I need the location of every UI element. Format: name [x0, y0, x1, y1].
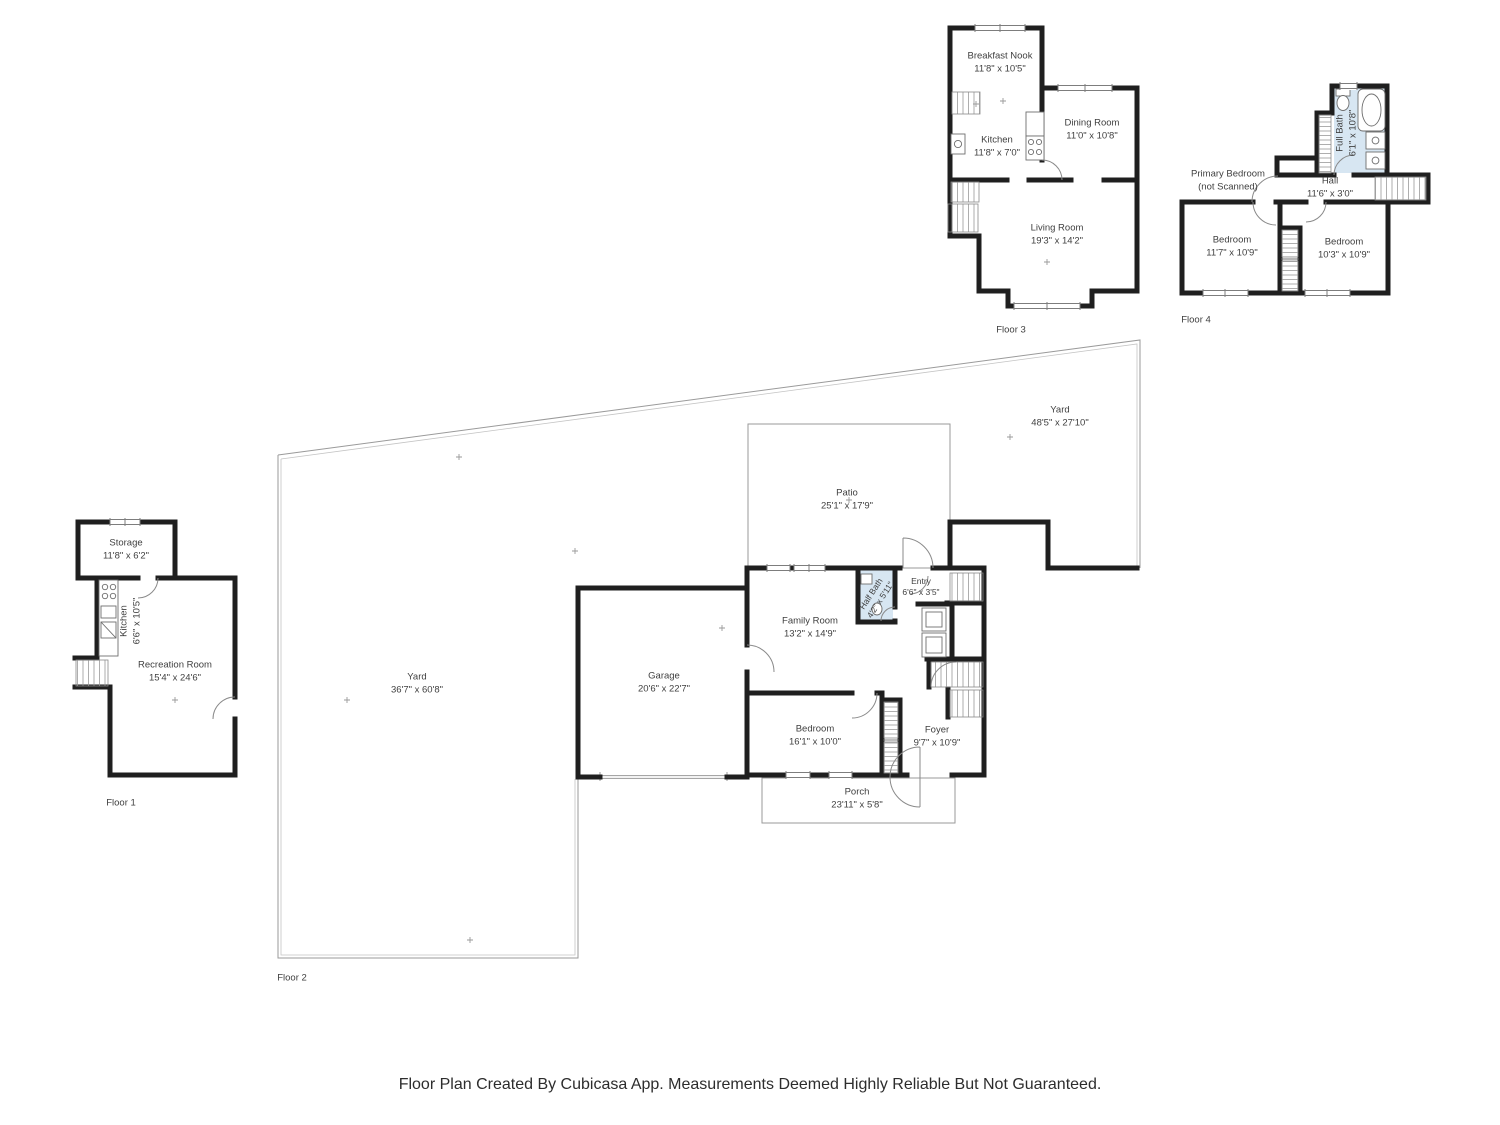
room-dims: 36'7" x 60'8" — [391, 684, 443, 697]
label-floor1-storage: Storage 11'8" x 6'2" — [103, 537, 149, 564]
room-dims: 10'3" x 10'9" — [1318, 249, 1370, 262]
label-floor3-dining-room: Dining Room 11'0" x 10'8" — [1065, 117, 1120, 144]
floor4-label: Floor 4 — [1181, 315, 1211, 326]
room-dims: 23'11" x 5'8" — [831, 799, 882, 812]
room-name: Yard — [1031, 404, 1088, 417]
room-dims: 11'7" x 10'9" — [1206, 247, 1257, 260]
label-floor3-living-room: Living Room 19'3" x 14'2" — [1031, 222, 1084, 249]
room-dims: 15'4" x 24'6" — [138, 672, 212, 685]
floor-2-plan — [278, 340, 1140, 958]
floor-1-plan — [75, 518, 235, 775]
label-floor4-full-bath: Full Bath 6'1" x 10'8" — [1334, 110, 1361, 157]
floor3-label: Floor 3 — [996, 325, 1026, 336]
room-dims: 6'1" x 10'8" — [1347, 110, 1360, 157]
room-dims: 11'0" x 10'8" — [1065, 130, 1120, 143]
label-floor3-kitchen: Kitchen 11'8" x 7'0" — [974, 134, 1020, 161]
floorplan-canvas — [0, 0, 1500, 1125]
room-name: Living Room — [1031, 222, 1084, 235]
room-dims: 11'8" x 7'0" — [974, 147, 1020, 160]
label-floor2-porch: Porch 23'11" x 5'8" — [831, 786, 882, 813]
room-name: Dining Room — [1065, 117, 1120, 130]
label-floor1-kitchen: Kitchen 6'6" x 10'5" — [118, 598, 145, 645]
label-floor2-family-room: Family Room 13'2" x 14'9" — [782, 615, 838, 642]
room-dims: (not Scanned) — [1191, 181, 1265, 194]
room-name: Primary Bedroom — [1191, 168, 1265, 181]
label-floor2-foyer: Foyer 9'7" x 10'9" — [914, 724, 961, 751]
label-floor2-patio: Patio 25'1" x 17'9" — [821, 487, 873, 514]
room-name: Breakfast Nook — [968, 50, 1033, 63]
room-dims: 6'6" x 3'5" — [902, 587, 939, 598]
room-dims: 20'6" x 22'7" — [638, 683, 690, 696]
room-name: Recreation Room — [138, 659, 212, 672]
label-floor2-yard-left: Yard 36'7" x 60'8" — [391, 671, 443, 698]
room-name: Storage — [103, 537, 149, 550]
label-floor2-garage: Garage 20'6" x 22'7" — [638, 670, 690, 697]
label-floor4-primary-bedroom: Primary Bedroom (not Scanned) — [1191, 168, 1265, 195]
label-floor3-breakfast-nook: Breakfast Nook 11'8" x 10'5" — [968, 50, 1033, 77]
room-dims: 48'5" x 27'10" — [1031, 417, 1088, 430]
caption-text: Floor Plan Created By Cubicasa App. Meas… — [0, 1076, 1500, 1094]
room-dims: 25'1" x 17'9" — [821, 500, 873, 513]
label-floor2-bedroom: Bedroom 16'1" x 10'0" — [789, 723, 841, 750]
room-name: Patio — [821, 487, 873, 500]
room-name: Full Bath — [1334, 110, 1347, 157]
room-dims: 11'6" x 3'0" — [1307, 188, 1353, 201]
room-dims: 9'7" x 10'9" — [914, 737, 961, 750]
room-name: Bedroom — [1206, 234, 1257, 247]
room-dims: 13'2" x 14'9" — [782, 628, 838, 641]
room-name: Porch — [831, 786, 882, 799]
label-floor1-recreation-room: Recreation Room 15'4" x 24'6" — [138, 659, 212, 686]
label-floor4-bedroom-left: Bedroom 11'7" x 10'9" — [1206, 234, 1257, 261]
room-dims: 11'8" x 10'5" — [968, 63, 1033, 76]
room-name: Kitchen — [118, 598, 131, 645]
room-name: Bedroom — [1318, 236, 1370, 249]
label-floor2-yard-right: Yard 48'5" x 27'10" — [1031, 404, 1088, 431]
floorplan-page: Breakfast Nook 11'8" x 10'5" Kitchen 11'… — [0, 0, 1500, 1125]
room-dims: 11'8" x 6'2" — [103, 550, 149, 563]
floor2-label: Floor 2 — [277, 973, 307, 984]
room-dims: 19'3" x 14'2" — [1031, 235, 1084, 248]
room-name: Kitchen — [974, 134, 1020, 147]
room-name: Family Room — [782, 615, 838, 628]
room-name: Garage — [638, 670, 690, 683]
label-floor2-entry: Entry 6'6" x 3'5" — [902, 576, 939, 598]
label-floor4-hall: Hall 11'6" x 3'0" — [1307, 175, 1353, 202]
room-dims: 16'1" x 10'0" — [789, 736, 841, 749]
label-floor4-bedroom-right: Bedroom 10'3" x 10'9" — [1318, 236, 1370, 263]
floor1-label: Floor 1 — [106, 798, 136, 809]
room-name: Bedroom — [789, 723, 841, 736]
room-name: Hall — [1307, 175, 1353, 188]
room-name: Entry — [902, 576, 939, 587]
room-name: Foyer — [914, 724, 961, 737]
room-name: Yard — [391, 671, 443, 684]
room-dims: 6'6" x 10'5" — [131, 598, 144, 645]
